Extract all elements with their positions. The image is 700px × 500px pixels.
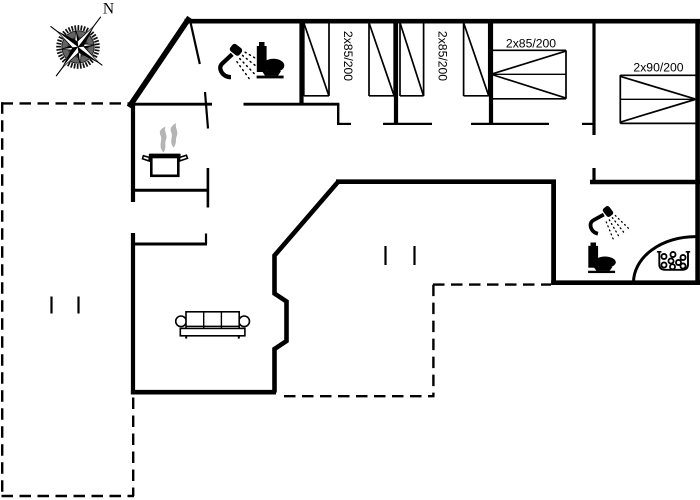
svg-text:2x85/200: 2x85/200 <box>341 31 355 81</box>
svg-text:2x90/200: 2x90/200 <box>633 61 683 75</box>
svg-text:2x85/200: 2x85/200 <box>435 31 449 81</box>
svg-text:2x85/200: 2x85/200 <box>506 36 556 50</box>
svg-text:N: N <box>103 1 114 18</box>
